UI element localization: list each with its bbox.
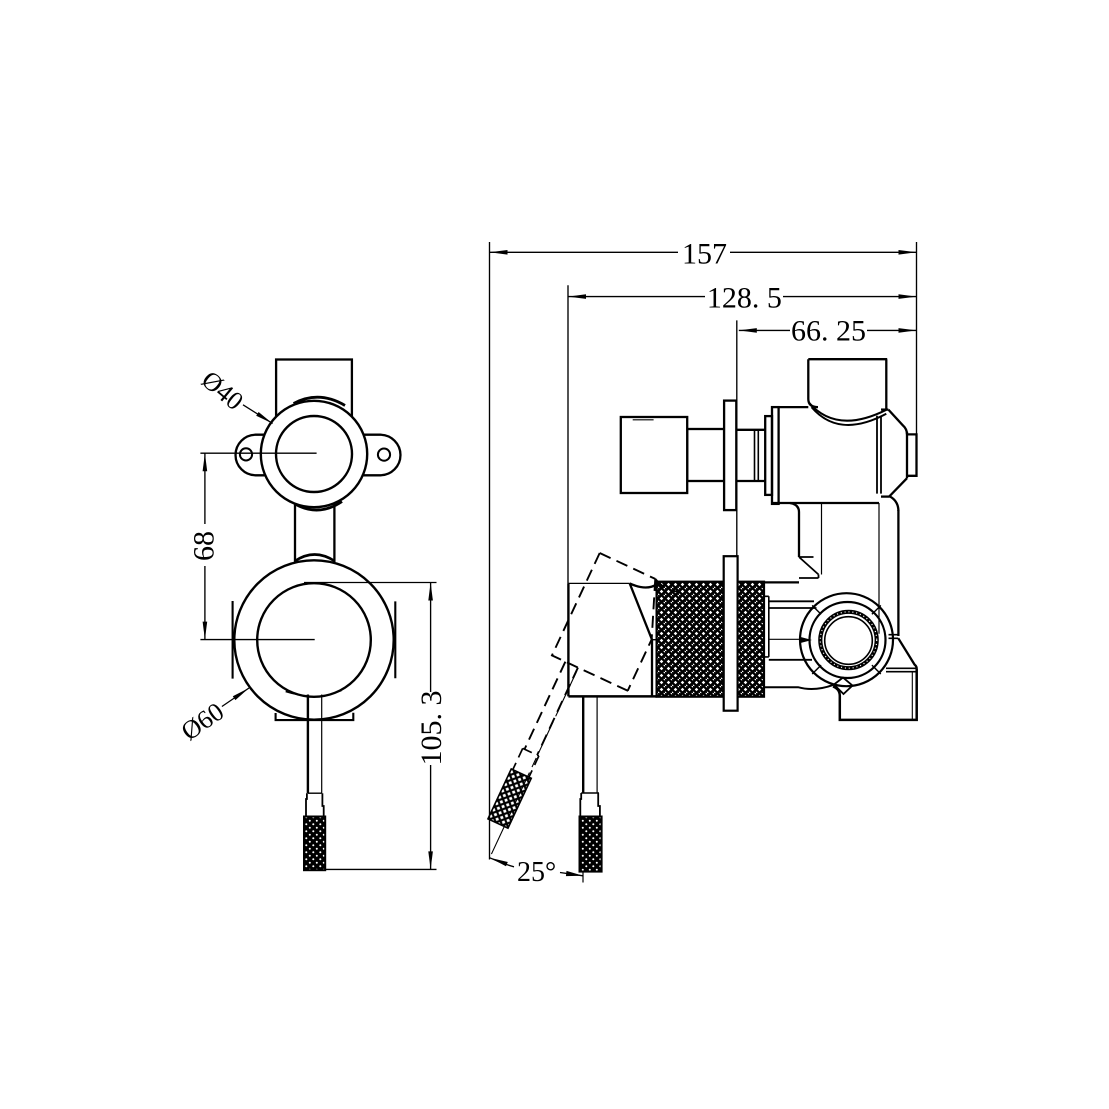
- svg-text:68: 68: [188, 531, 221, 561]
- svg-text:157: 157: [682, 238, 727, 271]
- svg-text:66. 25: 66. 25: [791, 315, 866, 348]
- svg-text:105. 3: 105. 3: [415, 691, 448, 766]
- svg-text:25°: 25°: [517, 857, 556, 888]
- svg-text:128. 5: 128. 5: [707, 282, 782, 315]
